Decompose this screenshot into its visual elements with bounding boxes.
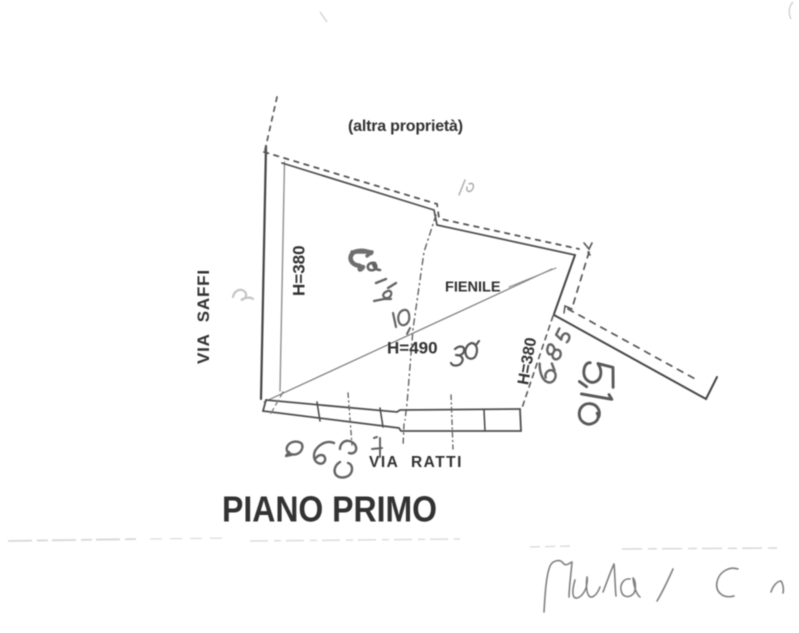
svg-text:H=490: H=490	[387, 339, 438, 358]
svg-text:(altra proprietà): (altra proprietà)	[348, 118, 463, 135]
svg-text:VIA RATTI: VIA RATTI	[369, 454, 463, 471]
svg-text:PIANO PRIMO: PIANO PRIMO	[222, 490, 437, 530]
svg-text:FIENILE: FIENILE	[445, 280, 501, 296]
svg-text:H=380: H=380	[290, 245, 309, 296]
svg-text:VIA SAFFI: VIA SAFFI	[194, 269, 213, 364]
